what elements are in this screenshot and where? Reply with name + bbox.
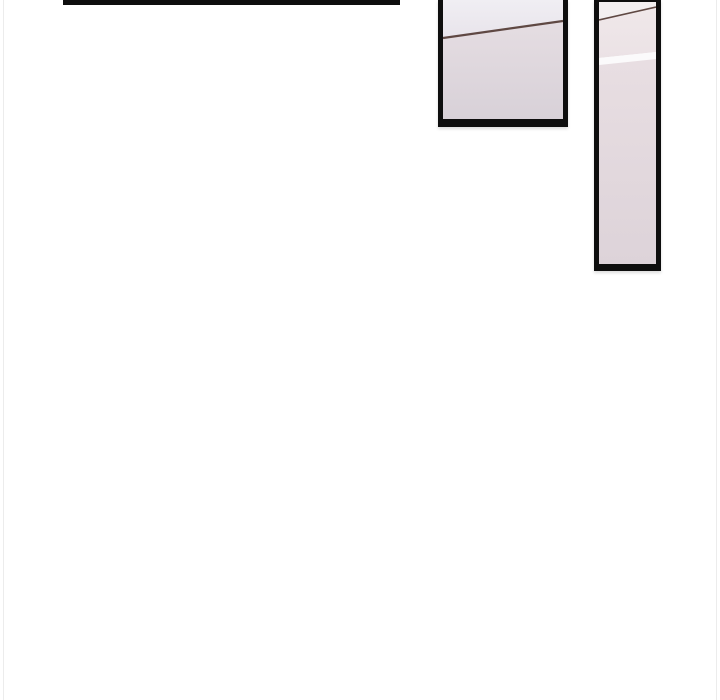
comic-page bbox=[0, 0, 720, 700]
comic-panel-wall-ceiling bbox=[438, 0, 568, 127]
comic-panel-wall-sliver bbox=[594, 0, 661, 271]
cropped-panel-bottom-border bbox=[63, 0, 400, 5]
page-left-edge-line bbox=[3, 0, 4, 700]
lower-wall-area bbox=[599, 59, 656, 264]
wall-ceiling-artwork bbox=[443, 0, 563, 119]
wall-sliver-artwork bbox=[599, 2, 656, 264]
page-right-edge-line bbox=[716, 0, 717, 700]
